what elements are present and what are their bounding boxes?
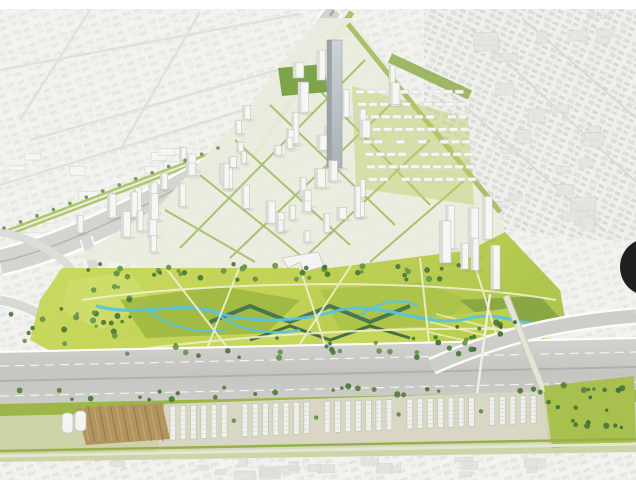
- masterplan-rendering: yuus: [0, 0, 636, 480]
- screenshot-root: yuus: [0, 0, 636, 480]
- watermark-text: yuus: [586, 10, 613, 22]
- courtyard-blocks: [352, 86, 476, 205]
- top-white-band: [0, 0, 636, 9]
- allotment-gardens: [76, 403, 170, 445]
